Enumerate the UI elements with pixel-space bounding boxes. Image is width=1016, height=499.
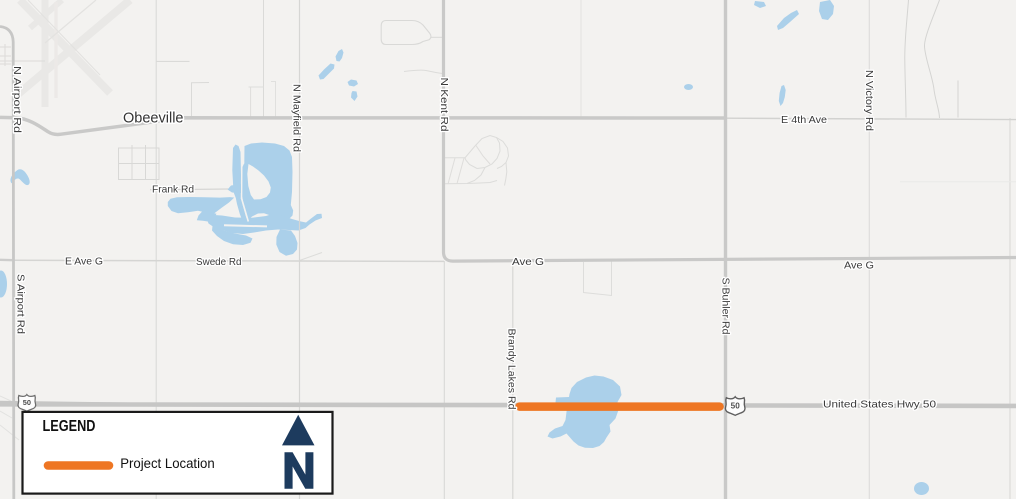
svg-text:Brandy Lakes Rd: Brandy Lakes Rd: [506, 329, 518, 410]
svg-text:S Airport Rd: S Airport Rd: [15, 274, 27, 334]
svg-text:50: 50: [731, 401, 741, 410]
svg-text:Project Location: Project Location: [120, 456, 215, 471]
svg-text:Obeeville: Obeeville: [123, 110, 184, 127]
svg-text:N Airport Rd: N Airport Rd: [11, 66, 23, 133]
svg-text:N Mayfield Rd: N Mayfield Rd: [291, 84, 303, 152]
svg-text:Swede Rd: Swede Rd: [196, 256, 242, 268]
svg-text:LEGEND: LEGEND: [43, 418, 96, 435]
svg-text:Ave G: Ave G: [844, 260, 874, 272]
svg-text:United States Hwy 50: United States Hwy 50: [823, 399, 936, 411]
svg-text:N Kent Rd: N Kent Rd: [438, 78, 450, 132]
svg-text:E 4th Ave: E 4th Ave: [781, 114, 827, 126]
svg-text:Frank Rd: Frank Rd: [152, 184, 194, 196]
svg-text:N Victory Rd: N Victory Rd: [863, 70, 875, 131]
svg-text:Ave G: Ave G: [512, 256, 544, 268]
svg-text:50: 50: [23, 398, 31, 407]
svg-text:S Buhler Rd: S Buhler Rd: [720, 278, 732, 335]
svg-text:E Ave G: E Ave G: [65, 255, 103, 267]
